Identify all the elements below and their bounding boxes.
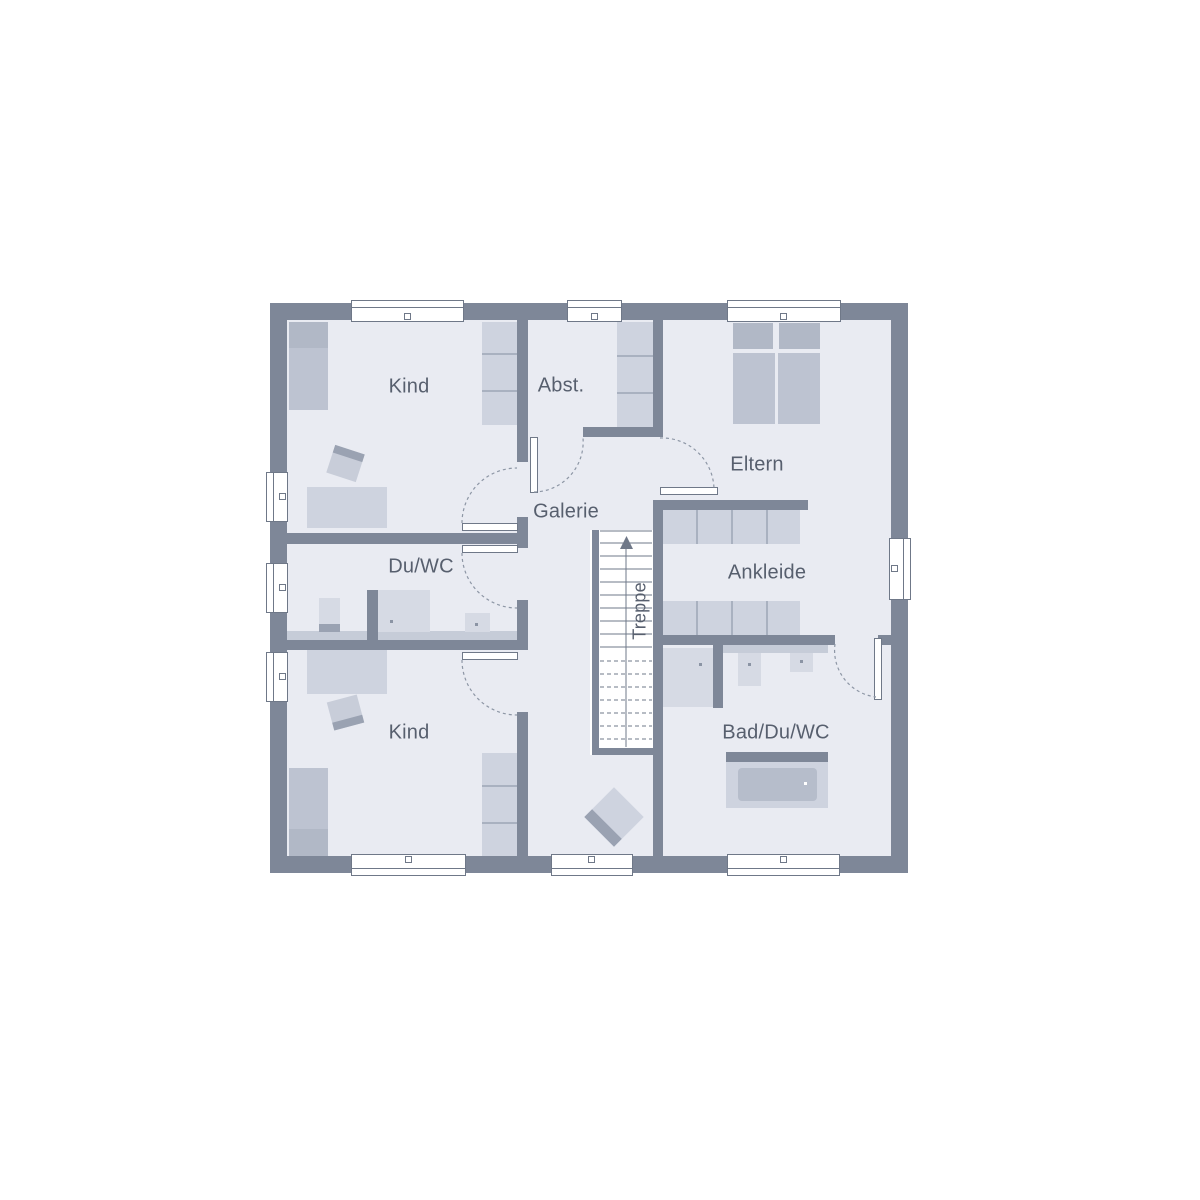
faucet-dot [475,623,478,626]
drain-dot [390,620,393,623]
wall-shower-bad [713,640,723,708]
faucet-dot [748,663,751,666]
door-leaf-kind-top [462,523,518,531]
desk [307,487,387,528]
window-handle [780,856,787,863]
bed-pillow [779,323,820,349]
wardrobe-divider [766,601,768,635]
stair-railing-wall [592,530,599,755]
room-label-ankleide: Ankleide [728,562,806,585]
sink-cabinet [738,653,761,686]
window-frame-line [352,307,463,308]
wardrobe [482,322,518,425]
window-frame-line [552,868,632,869]
tub-faucet-dot [804,782,807,785]
window-handle [279,673,286,680]
wall-shower-duwc [367,590,378,650]
shower-tray [661,648,713,707]
window [727,300,841,322]
window [266,563,288,613]
window-frame-line [568,307,621,308]
wardrobe-divider [766,510,768,544]
window-frame-line [273,653,274,701]
wall-ankleide-top [653,500,808,510]
window-handle [405,856,412,863]
window-handle [591,313,598,320]
wall-kind-galerie [517,712,528,856]
storage-shelf [617,322,653,427]
room-label-kind-bottom: Kind [389,722,430,745]
shelf-divider [482,785,518,787]
window-frame-line [728,307,840,308]
shelf-divider [482,390,518,392]
wardrobe-divider [731,601,733,635]
desk [307,650,387,694]
window-handle [404,313,411,320]
shelf-divider [482,353,518,355]
window [266,652,288,702]
door-leaf-abst [530,437,538,493]
window [567,300,622,322]
wardrobe-divider [696,510,698,544]
double-bed [733,353,820,424]
vanity-counter [287,631,517,640]
shelf-divider [617,355,653,357]
toilet-base [319,624,340,632]
bed-divider [775,353,778,424]
window [351,854,466,876]
room-label-eltern: Eltern [730,454,783,477]
bed-pillow [289,322,328,348]
room-label-kind-top: Kind [389,376,430,399]
drain-dot [699,663,702,666]
wall-pier [517,517,528,548]
door-leaf-kind-bottom [462,652,518,660]
window-frame-line [352,868,465,869]
wall-kind-duwc [287,533,517,544]
wall-abst-bottom [583,427,663,437]
window-handle [279,493,286,500]
stair-bottom-wall [592,748,663,755]
window-frame-line [273,564,274,612]
door-leaf-duwc [462,545,518,553]
window-frame-line [903,539,904,599]
wardrobe-row [662,510,800,544]
window [351,300,464,322]
floor-plan-canvas: Kind Abst. Eltern Galerie Du/WC Ankleide… [0,0,1200,1200]
wall-ankleide-bottom [653,635,835,645]
wardrobe-row [662,601,800,635]
window [727,854,840,876]
room-label-abst: Abst. [538,375,585,398]
door-leaf-bad [874,638,882,700]
room-label-duwc: Du/WC [388,556,453,579]
wall-duwc-kind [287,640,527,650]
bed-pillow [289,829,328,856]
floor-plan: Kind Abst. Eltern Galerie Du/WC Ankleide… [0,0,1200,1200]
wardrobe-divider [731,510,733,544]
door-leaf-eltern [660,487,718,495]
window-handle [279,584,286,591]
shower-tray [378,590,430,632]
toilet [319,598,340,624]
window [889,538,911,600]
window-handle [780,313,787,320]
room-label-galerie: Galerie [533,501,599,524]
room-label-bad: Bad/Du/WC [722,722,829,745]
window [551,854,633,876]
faucet-dot [800,660,803,663]
wall-kind-abst [517,320,528,462]
wall-central [653,500,663,856]
bathtub-rail [726,752,828,762]
shelf-divider [482,822,518,824]
wardrobe [482,753,518,856]
wardrobe-divider [696,601,698,635]
bed-pillow [733,323,773,349]
window-frame-line [728,868,839,869]
window [266,472,288,522]
window-frame-line [273,473,274,521]
wall-abst-eltern [653,320,663,437]
window-handle [891,565,898,572]
room-label-treppe: Treppe [630,582,651,640]
shelf-divider [617,392,653,394]
window-handle [588,856,595,863]
